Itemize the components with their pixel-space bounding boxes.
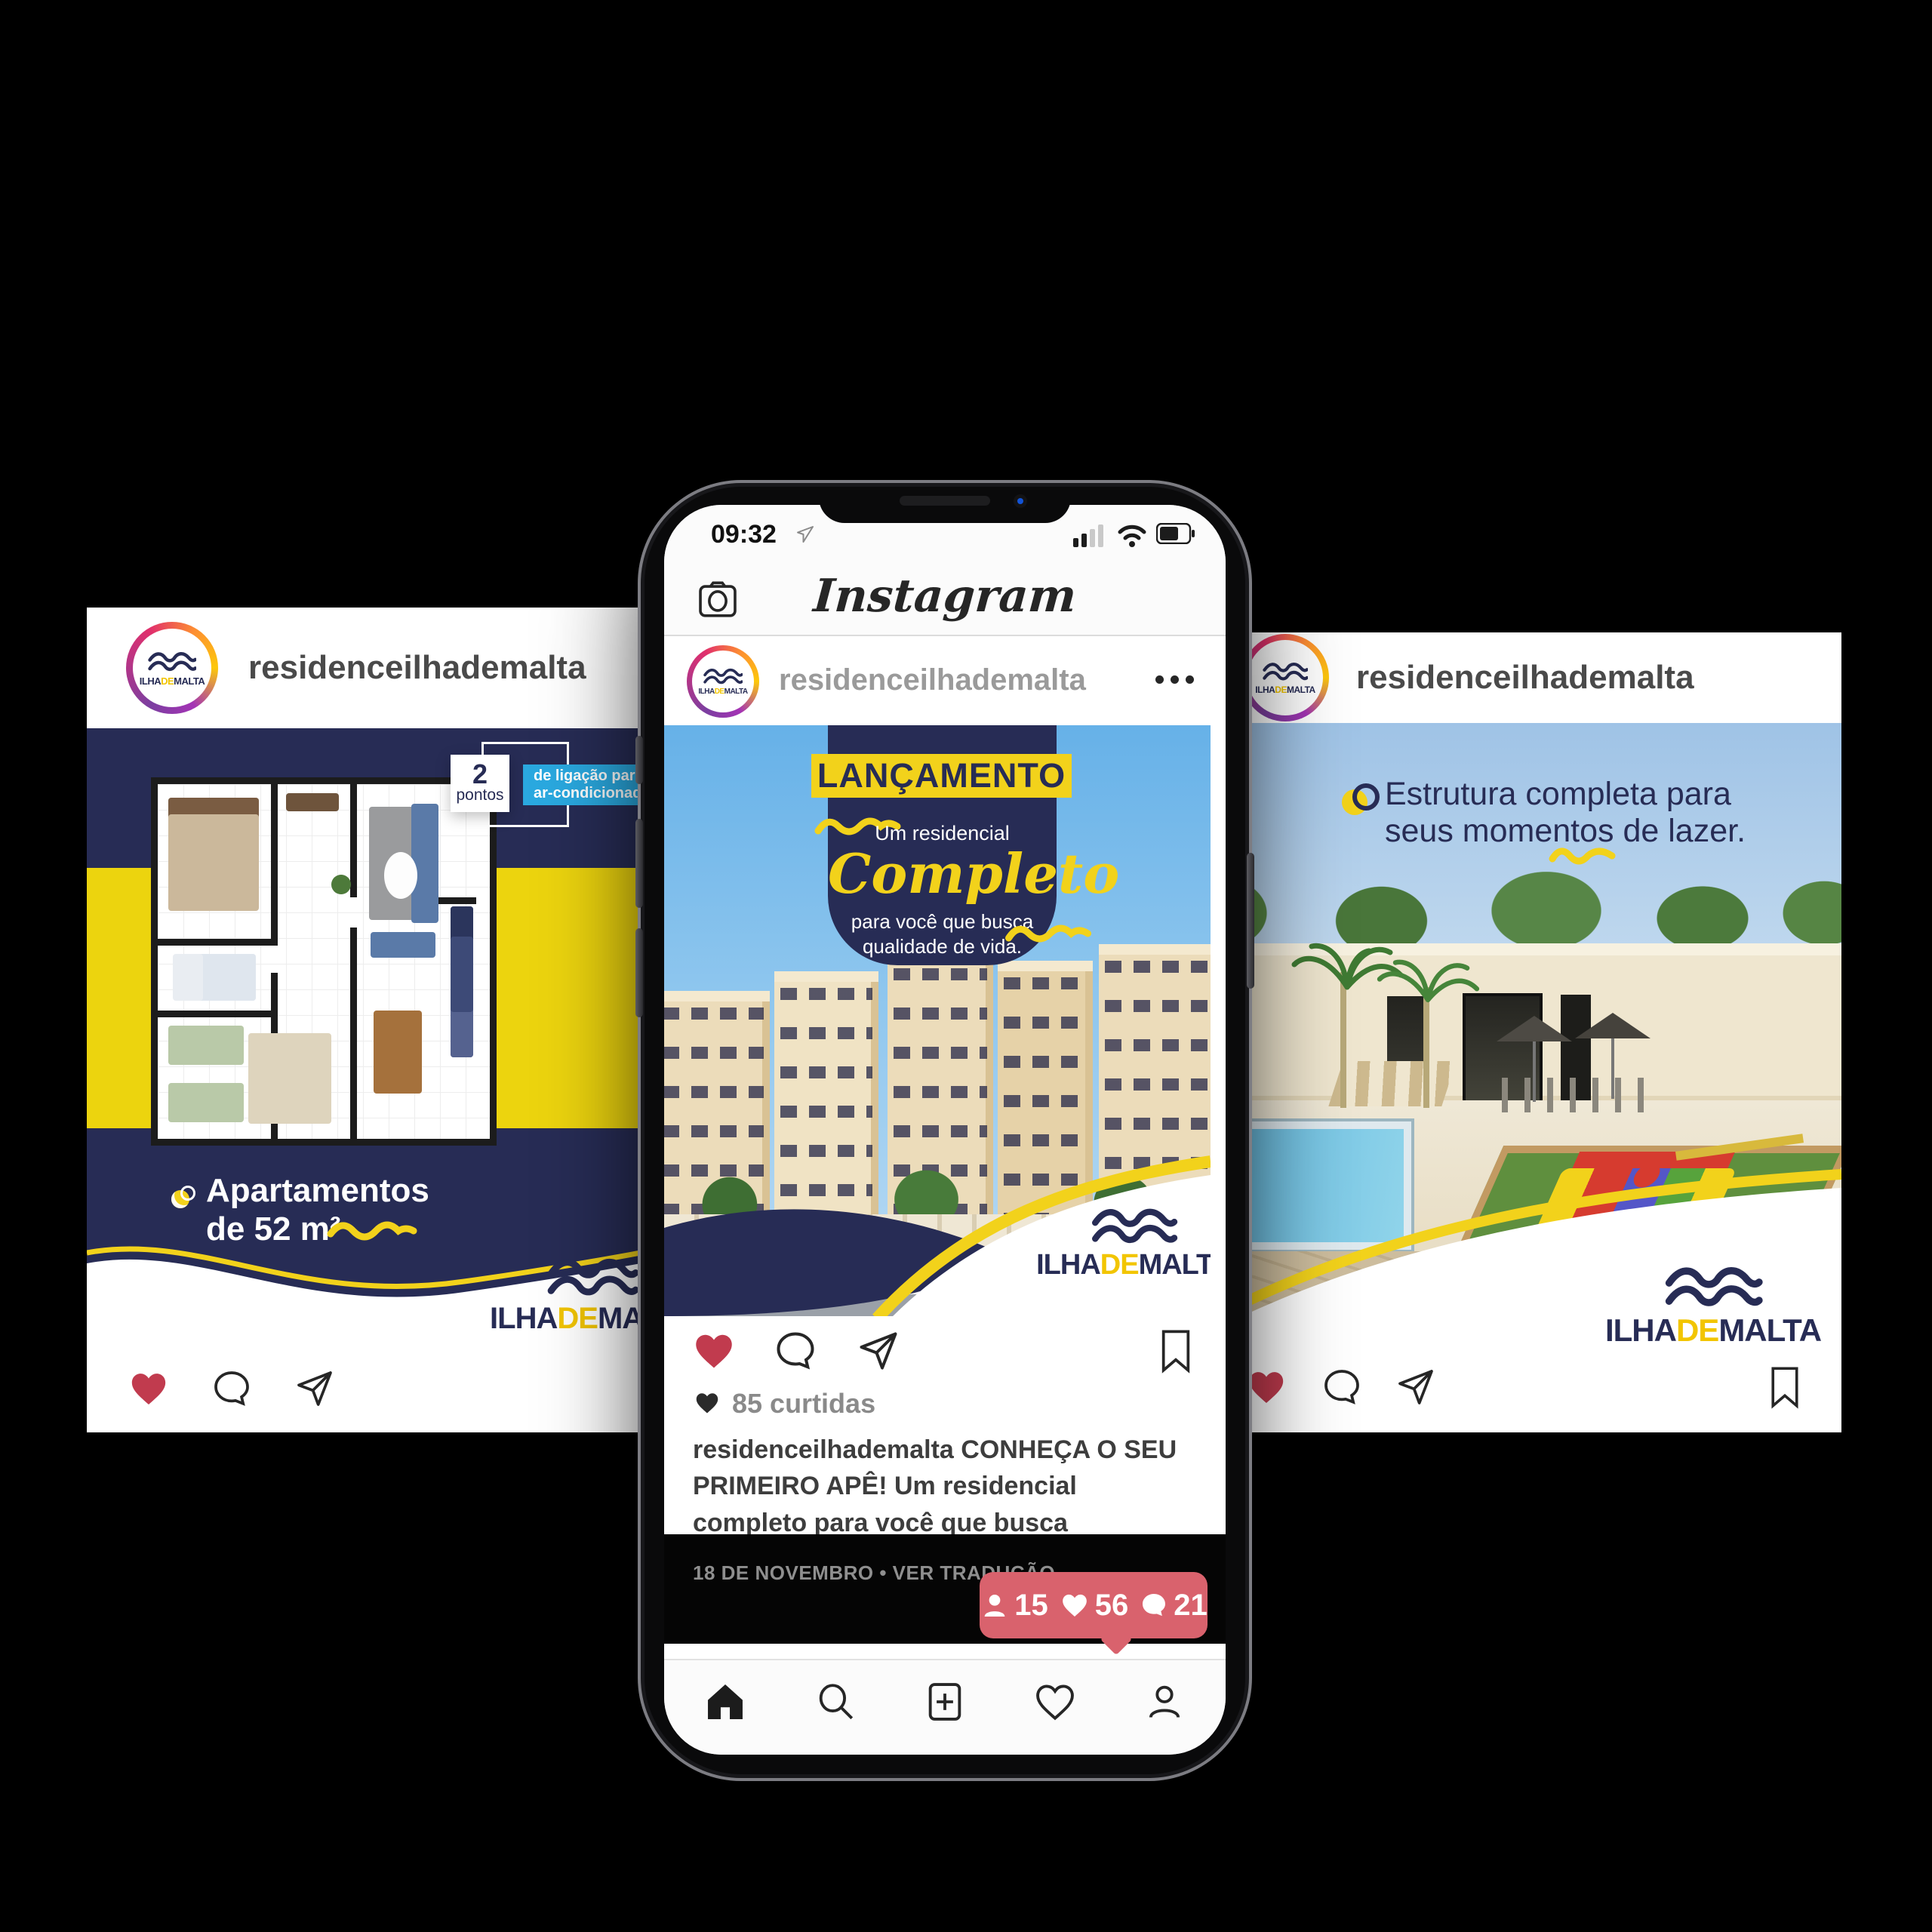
brand-waves-icon	[1263, 661, 1308, 685]
rug	[248, 1033, 331, 1124]
share-icon[interactable]	[854, 1328, 903, 1374]
badge-follows: 15	[1014, 1589, 1048, 1623]
home-icon[interactable]	[703, 1680, 747, 1724]
bookmark-icon[interactable]	[1764, 1364, 1805, 1410]
bottom-nav	[664, 1659, 1226, 1755]
post-image[interactable]: LANÇAMENTO Um residencial Completo para …	[664, 725, 1211, 1316]
phone-notch	[819, 487, 1071, 523]
new-post-icon[interactable]	[923, 1680, 967, 1724]
left-avatar[interactable]: ILHADEMALTA	[126, 622, 218, 714]
patio-chairs	[1502, 1078, 1653, 1112]
right-feature-bullet-ring	[1352, 783, 1380, 811]
bed-single-2	[168, 1083, 244, 1122]
brand-logo: ILHADEMALTA	[1615, 1265, 1811, 1346]
post-avatar[interactable]: ILHADEMALTA	[687, 645, 759, 718]
phone-screen: 09:32 Instagram ILHADEMALTA res	[664, 505, 1226, 1755]
caption-username[interactable]: residenceilhademalta	[693, 1435, 954, 1464]
badge-likes: 56	[1095, 1589, 1129, 1623]
engagement-badge: 15 56 21	[980, 1572, 1207, 1638]
share-icon[interactable]	[292, 1367, 337, 1410]
post-username[interactable]: residenceilhademalta	[779, 663, 1086, 697]
brand-waves-icon	[528, 1257, 657, 1303]
meta-band: 18 DE NOVEMBRO • VER TRADUÇÃO 15 56 21	[664, 1534, 1226, 1644]
bookmark-icon[interactable]	[1155, 1327, 1197, 1375]
post-header: ILHADEMALTA residenceilhademalta	[664, 636, 1226, 725]
volume-up-button[interactable]	[635, 819, 643, 908]
location-arrow-icon	[794, 523, 817, 546]
badge-comments: 21	[1174, 1589, 1207, 1623]
like-icon[interactable]	[126, 1367, 171, 1410]
plant	[331, 875, 351, 894]
signal-icon	[1073, 525, 1105, 547]
palm-fronds-2	[1375, 958, 1481, 1007]
comment-badge-icon	[1139, 1590, 1169, 1620]
launch-ribbon: LANÇAMENTO	[811, 754, 1072, 798]
phone-mockup: 09:32 Instagram ILHADEMALTA res	[645, 487, 1245, 1774]
callout-label: pontos	[456, 786, 503, 804]
right-avatar[interactable]: ILHADEMALTA	[1241, 634, 1329, 721]
heart-small-icon	[693, 1389, 721, 1417]
wardrobe	[286, 793, 339, 811]
volume-down-button[interactable]	[635, 928, 643, 1017]
sofa-2	[371, 932, 435, 958]
sofa	[411, 804, 438, 923]
profile-icon[interactable]	[1143, 1680, 1186, 1724]
comment-icon[interactable]	[209, 1367, 254, 1410]
squiggle-yellow	[1003, 920, 1094, 947]
floor-plan	[151, 777, 497, 1146]
mute-switch[interactable]	[635, 736, 643, 784]
battery-icon	[1156, 523, 1195, 544]
post-actions	[664, 1316, 1226, 1386]
bed-double	[168, 798, 259, 911]
status-time: 09:32	[711, 520, 777, 549]
brand-waves-icon	[1641, 1265, 1785, 1315]
brand-waves-icon	[148, 651, 196, 676]
brand-waves-icon	[703, 667, 743, 688]
heart-badge-icon	[1059, 1590, 1091, 1620]
like-icon[interactable]	[690, 1328, 738, 1374]
callout-card: 2 pontos	[451, 755, 509, 812]
callout-number: 2	[472, 762, 488, 786]
wifi-icon	[1117, 523, 1147, 547]
brand-logo: ILHADEMALTA	[1058, 1207, 1209, 1279]
instagram-app-bar: Instagram	[664, 564, 1226, 636]
instagram-logo: Instagram	[664, 570, 1226, 623]
banner-script: Completo	[828, 841, 1057, 906]
bed-single-1	[168, 1026, 244, 1065]
dining-table	[374, 1011, 422, 1094]
comment-icon[interactable]	[771, 1328, 820, 1374]
power-button[interactable]	[1247, 853, 1254, 989]
bathroom-fixtures	[173, 954, 256, 1001]
search-icon[interactable]	[814, 1680, 857, 1724]
activity-icon[interactable]	[1033, 1680, 1077, 1724]
likes-row[interactable]: 85 curtidas	[664, 1386, 1226, 1421]
more-options-icon[interactable]	[1155, 675, 1194, 684]
comment-icon[interactable]	[1319, 1366, 1364, 1408]
right-feature-line1: Estrutura completa para	[1385, 776, 1746, 813]
likes-count[interactable]: 85 curtidas	[732, 1388, 875, 1420]
like-icon[interactable]	[1244, 1366, 1289, 1408]
lounge-chairs	[1328, 1061, 1456, 1106]
left-username[interactable]: residenceilhademalta	[248, 649, 586, 687]
brand-waves-icon	[1072, 1207, 1196, 1251]
share-icon[interactable]	[1393, 1366, 1438, 1408]
right-username[interactable]: residenceilhademalta	[1356, 659, 1694, 697]
launch-banner: LANÇAMENTO Um residencial Completo para …	[828, 725, 1057, 965]
follower-icon	[980, 1590, 1010, 1620]
kitchen-appliances	[451, 906, 473, 1057]
coffee-table	[384, 852, 417, 899]
